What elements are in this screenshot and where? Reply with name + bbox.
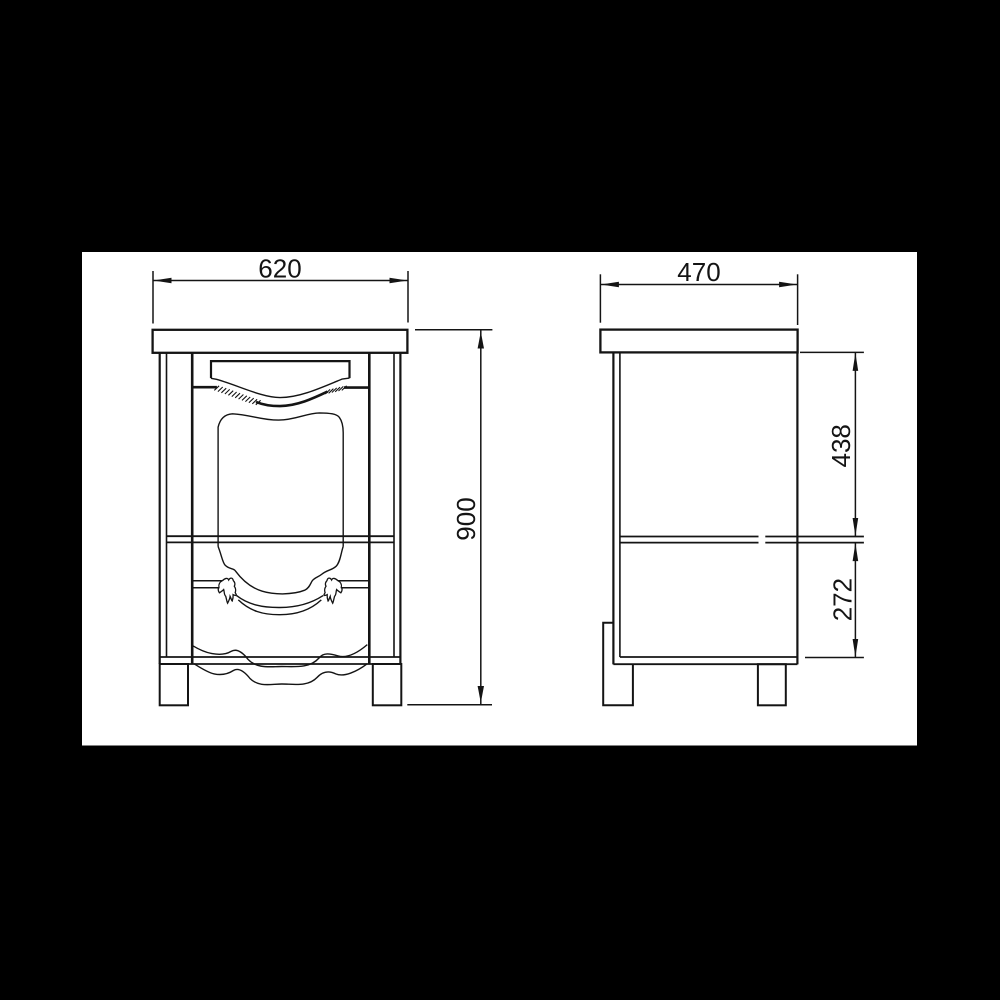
svg-text:438: 438	[826, 424, 856, 467]
svg-text:620: 620	[258, 254, 301, 284]
svg-text:272: 272	[827, 578, 857, 621]
svg-text:470: 470	[677, 257, 720, 287]
svg-text:900: 900	[451, 497, 481, 540]
